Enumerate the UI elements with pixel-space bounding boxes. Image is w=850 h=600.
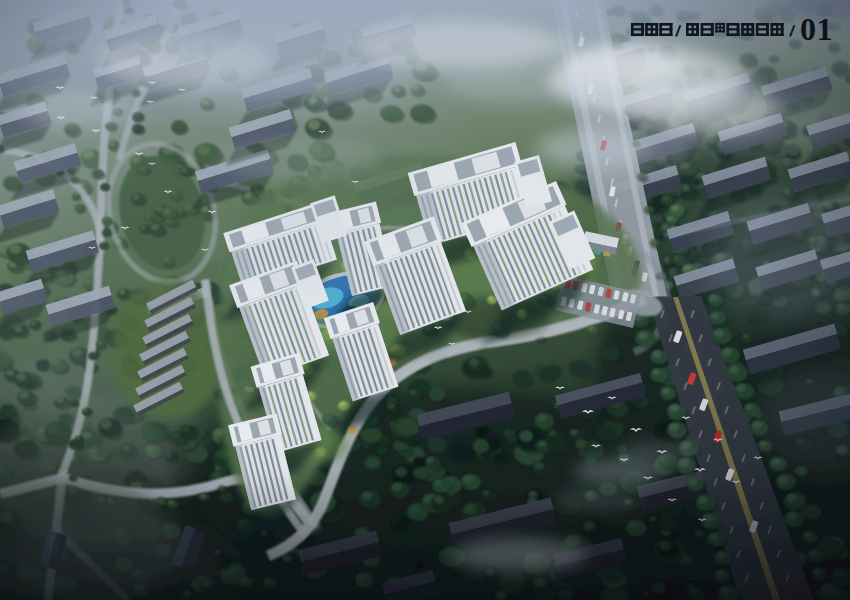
svg-text:01: 01 — [800, 11, 833, 47]
